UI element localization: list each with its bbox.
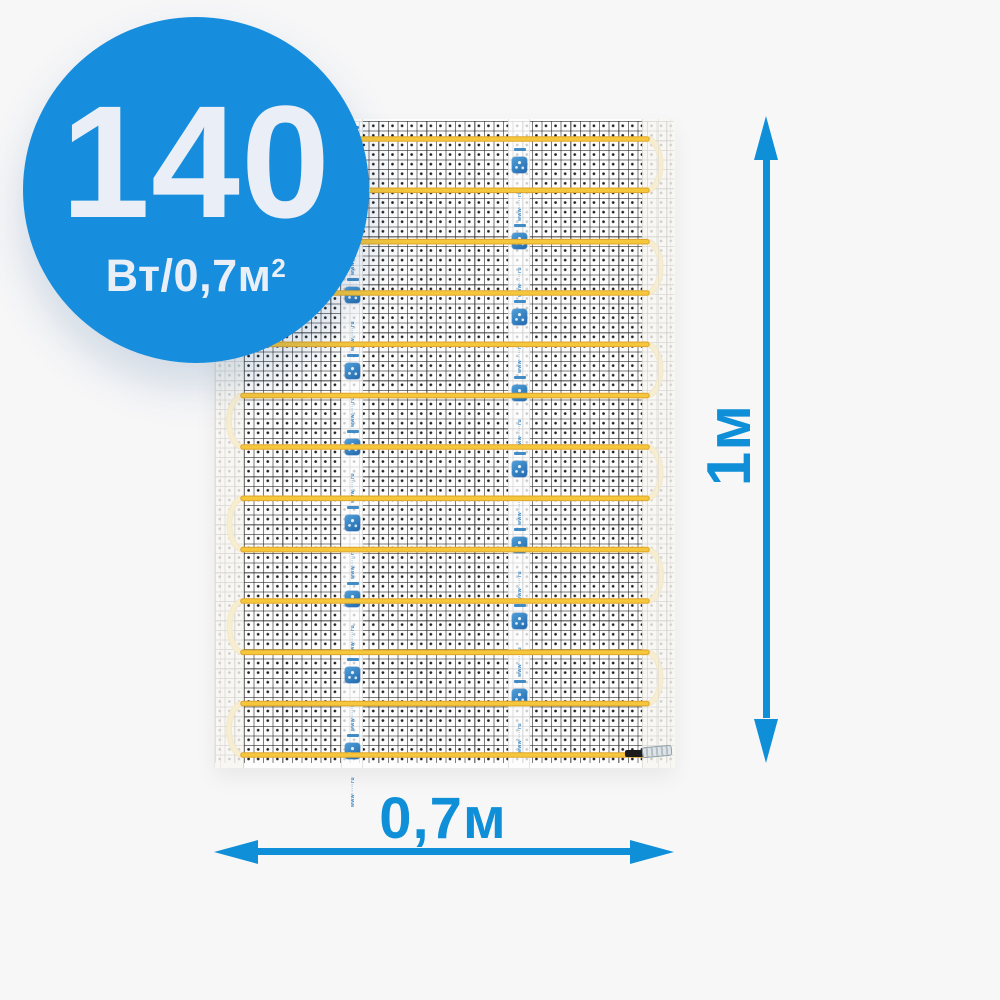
power-badge: 140 Вт/0,7м2 bbox=[23, 17, 369, 363]
product-image: www·····ruwww·····ruwww·····ruwww·····ru… bbox=[0, 0, 1000, 1000]
width-label: 0,7м bbox=[333, 785, 553, 852]
power-unit-superscript: 2 bbox=[271, 253, 286, 283]
height-arrow-shaft bbox=[763, 152, 770, 718]
height-label: 1м bbox=[694, 345, 758, 545]
power-unit: Вт/0,7м2 bbox=[23, 250, 369, 302]
power-value: 140 bbox=[23, 79, 369, 244]
arrow-right-icon bbox=[630, 840, 674, 864]
power-unit-text: Вт/0,7м bbox=[106, 250, 272, 301]
arrow-down-icon bbox=[754, 719, 778, 763]
